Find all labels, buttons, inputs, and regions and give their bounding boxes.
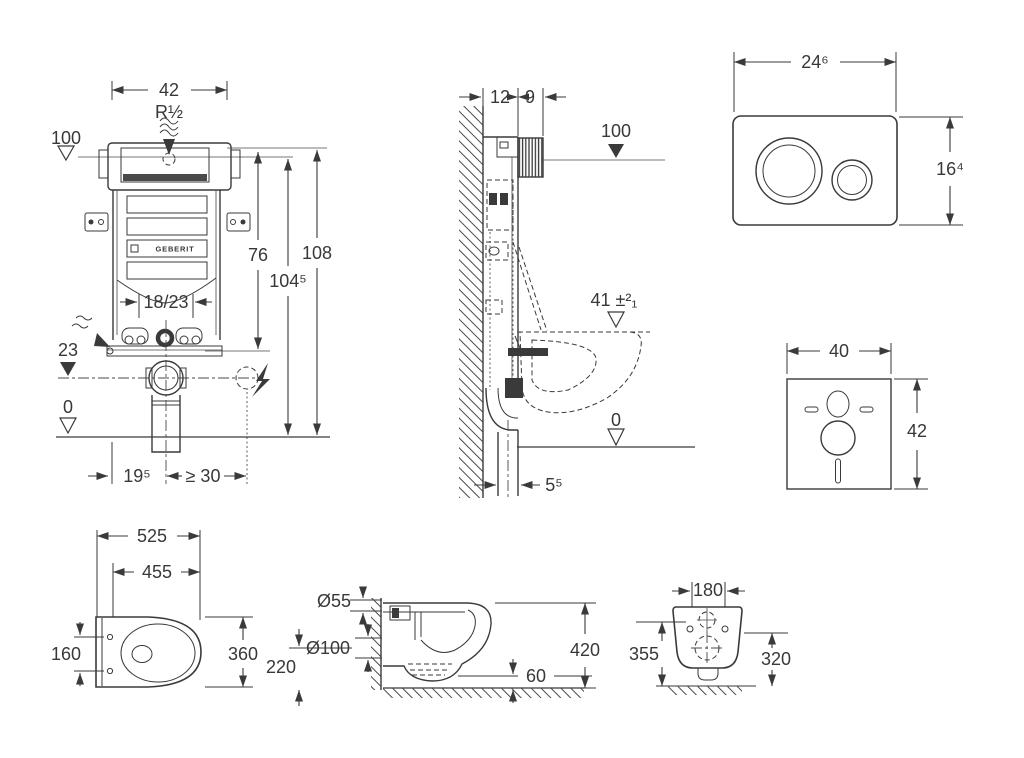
dim-mat-height-label: 42	[907, 421, 927, 441]
dim-outlet-height-label: 220	[266, 657, 296, 677]
dim-plate-width-label: 24⁶	[801, 52, 828, 72]
sound-insulation-mat-view: 40 42	[787, 341, 928, 489]
brand-label: GEBERIT	[156, 245, 195, 254]
dim-floor-level-label: 0	[63, 397, 73, 417]
dim-offset-19-5-label: 19⁵	[123, 466, 150, 486]
drawing-svg: 42 R½ GEBERIT	[0, 0, 1024, 758]
frame-side-view: 12 9 100 41 ±	[459, 87, 695, 500]
dim-rear-hole-spacing-label: 180	[693, 580, 723, 600]
technical-drawing-sheet: 42 R½ GEBERIT	[0, 0, 1024, 758]
dim-inlet-level-side-label: 100	[601, 121, 631, 141]
pan-top-view: 525 455 160 360	[51, 526, 258, 687]
dim-pan-length-label: 525	[137, 526, 167, 546]
dim-pan-hole-spacing-label: 160	[51, 644, 81, 664]
dim-floor-level-side-label: 0	[611, 410, 621, 430]
dim-depth-9-label: 9	[525, 87, 535, 107]
frame-front-view: 42 R½ GEBERIT	[51, 80, 332, 486]
dim-outlet-offset-label: 18/23	[143, 292, 188, 312]
dim-frame-width-label: 42	[159, 80, 179, 100]
dim-pan-inner-length-label: 455	[142, 562, 172, 582]
dim-inlet-thread-label: R½	[155, 102, 183, 122]
dim-height-108-label: 108	[302, 243, 332, 263]
dim-clearance-label: 60	[526, 666, 546, 686]
dim-outlet-distance-label: 5⁵	[545, 475, 562, 495]
dim-flush-diameter-label: Ø55	[317, 591, 351, 611]
dim-pan-depth-label: 420	[570, 640, 600, 660]
dim-outlet-level-label: 23	[58, 340, 78, 360]
dim-height-104-5-label: 104⁵	[269, 271, 307, 291]
dim-rim-height-label: 41 ±²₁	[591, 290, 638, 310]
dim-rear-height-right-label: 320	[761, 649, 791, 669]
flush-plate-view: 24⁶ 16⁴	[733, 52, 964, 225]
dim-plate-height-label: 16⁴	[936, 159, 964, 179]
pan-side-view: Ø55 Ø100 220 420 60	[266, 587, 600, 706]
dim-clearance-min-30-label: ≥ 30	[186, 466, 221, 486]
dim-height-76-label: 76	[248, 245, 268, 265]
dim-mat-width-label: 40	[829, 341, 849, 361]
dim-pan-width-label: 360	[228, 644, 258, 664]
pan-rear-view: 180 355 320	[629, 580, 791, 695]
dim-inlet-level-label: 100	[51, 128, 81, 148]
dim-rear-height-left-label: 355	[629, 644, 659, 664]
